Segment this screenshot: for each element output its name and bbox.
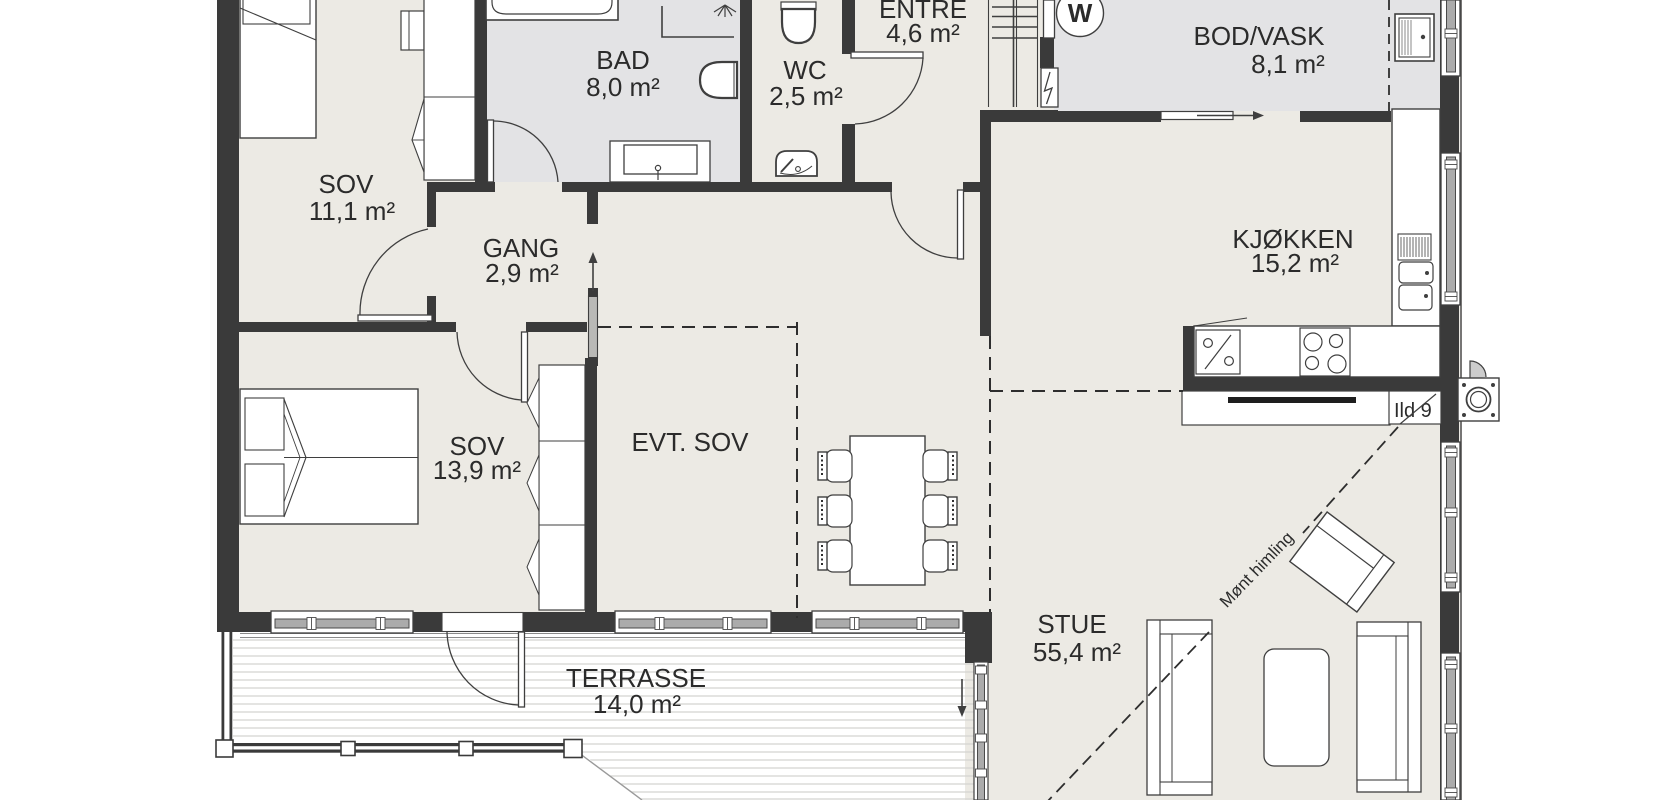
svg-text:BAD: BAD [596, 45, 649, 75]
svg-text:4,6 m²: 4,6 m² [886, 18, 960, 48]
svg-text:EVT. SOV: EVT. SOV [631, 427, 749, 457]
svg-text:13,9 m²: 13,9 m² [433, 455, 521, 485]
svg-text:2,5 m²: 2,5 m² [769, 81, 843, 111]
svg-text:14,0 m²: 14,0 m² [593, 689, 681, 719]
svg-text:2,9 m²: 2,9 m² [485, 258, 559, 288]
svg-text:STUE: STUE [1037, 609, 1106, 639]
svg-text:55,4 m²: 55,4 m² [1033, 637, 1121, 667]
svg-text:15,2 m²: 15,2 m² [1251, 248, 1339, 278]
svg-text:8,1 m²: 8,1 m² [1251, 49, 1325, 79]
svg-text:SOV: SOV [319, 169, 375, 199]
svg-text:W: W [1068, 0, 1093, 28]
svg-text:Ild 9: Ild 9 [1394, 400, 1432, 422]
svg-text:BOD/VASK: BOD/VASK [1193, 21, 1325, 51]
svg-text:11,1 m²: 11,1 m² [309, 196, 396, 226]
svg-text:8,0 m²: 8,0 m² [586, 72, 660, 102]
